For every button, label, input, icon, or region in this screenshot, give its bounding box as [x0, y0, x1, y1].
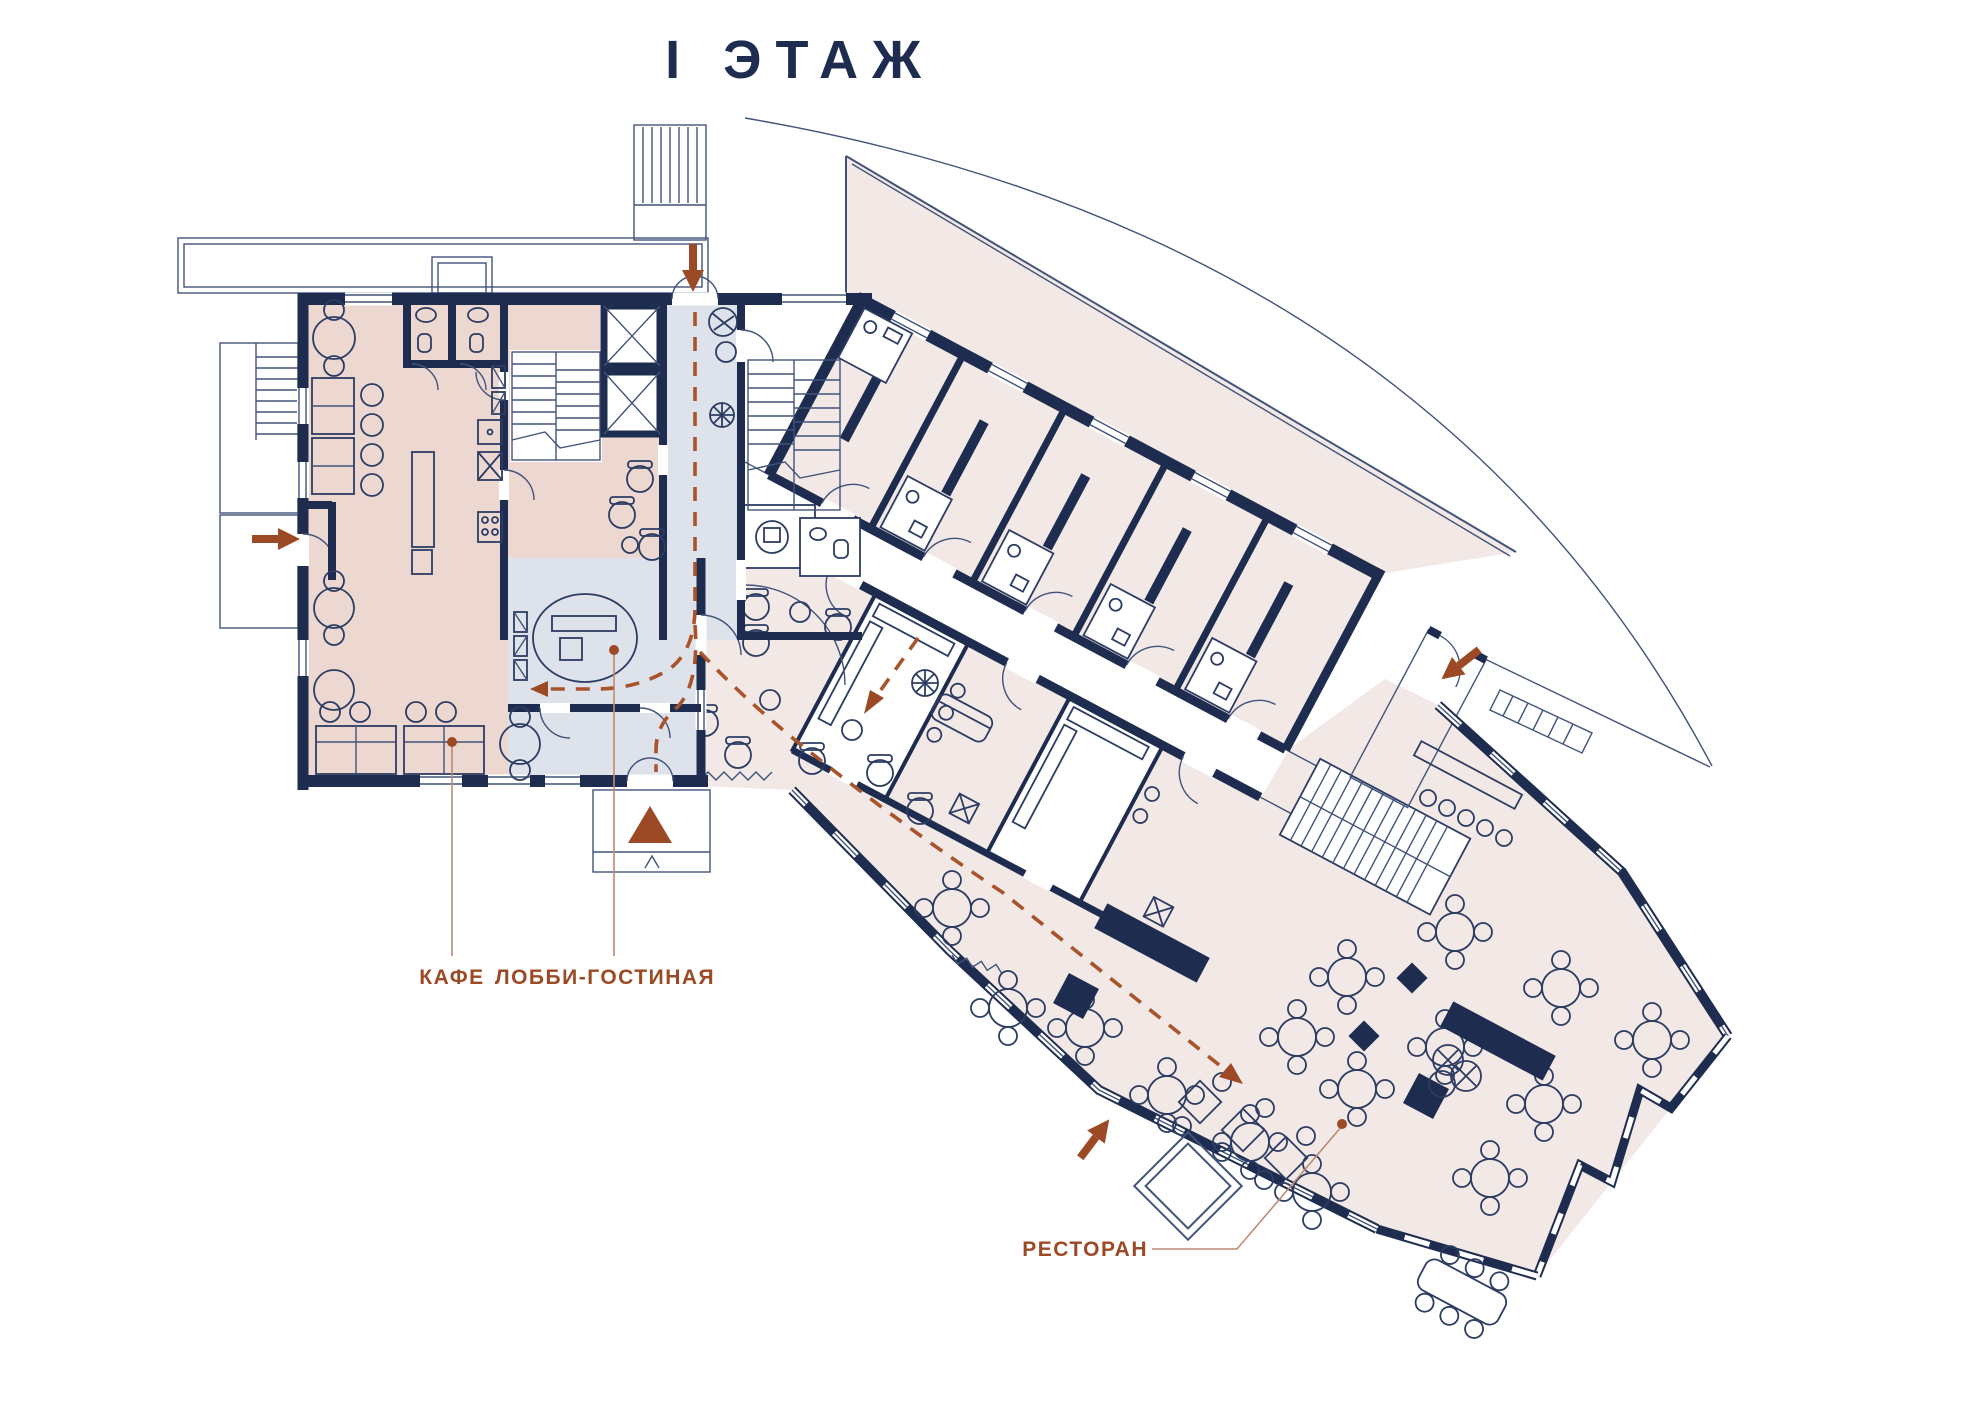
- floor-plan-drawing: КАФЕ ЛОББИ-ГОСТИНАЯ РЕСТОРАН I ЭТАЖ: [0, 0, 1980, 1414]
- cafe-label: КАФЕ: [419, 966, 484, 989]
- restaurant-label: РЕСТОРАН: [1022, 1238, 1148, 1261]
- wc-core: [800, 518, 860, 576]
- floor-plan-page: КАФЕ ЛОББИ-ГОСТИНАЯ РЕСТОРАН I ЭТАЖ: [0, 0, 1980, 1414]
- page-title: I ЭТАЖ: [665, 30, 935, 90]
- lobby-label: ЛОББИ-ГОСТИНАЯ: [495, 966, 715, 989]
